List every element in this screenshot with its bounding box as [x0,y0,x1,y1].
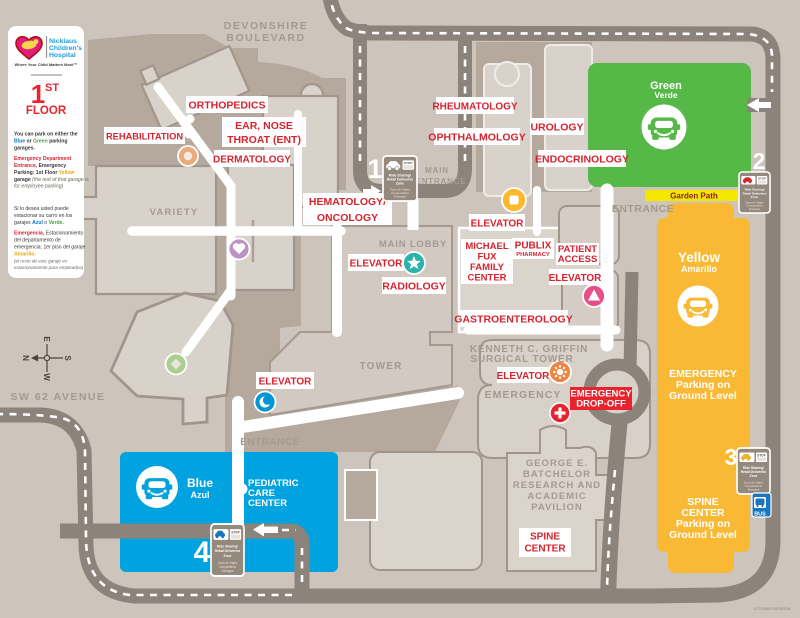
svg-text:GASTROENTEROLOGY: GASTROENTEROLOGY [454,314,572,326]
svg-text:estacionar su carro en los: estacionar su carro en los [14,213,73,219]
svg-text:FLOOR: FLOOR [26,105,67,117]
svg-text:garage (the rest of that garag: garage (the rest of that garage is [14,177,89,183]
svg-text:ENDOCRINOLOGY: ENDOCRINOLOGY [535,154,629,166]
svg-text:RESEARCH AND: RESEARCH AND [513,480,601,491]
svg-text:ORTHOPEDICS: ORTHOPEDICS [188,100,265,112]
svg-text:ENTRANCE: ENTRANCE [240,437,300,448]
svg-text:Amarillo: Amarillo [681,264,718,274]
svg-text:BOULEVARD: BOULEVARD [226,32,305,44]
svg-text:ONCOLOGY: ONCOLOGY [317,212,378,224]
svg-text:SW 62 AVENUE: SW 62 AVENUE [10,391,105,403]
svg-text:STOP: STOP [757,453,765,457]
svg-text:S: S [63,355,72,361]
svg-text:Zone: Zone [224,554,232,558]
svg-text:Emergencia, Estacionamiento: Emergencia, Estacionamiento [14,231,84,237]
svg-text:RADIOLOGY: RADIOLOGY [382,281,446,293]
svg-text:Azul: Azul [191,490,210,500]
svg-text:ELEVATOR: ELEVATOR [471,219,525,230]
svg-text:Verde: Verde [654,90,677,100]
svg-text:RHEUMATOLOGY: RHEUMATOLOGY [432,102,518,113]
svg-text:SPINE: SPINE [530,532,560,543]
svg-text:DERMATOLOGY: DERMATOLOGY [213,155,291,166]
svg-text:ELEVATOR: ELEVATOR [497,371,551,382]
svg-text:MAIN: MAIN [425,166,449,175]
svg-text:SURGICAL TOWER: SURGICAL TOWER [470,354,573,365]
svg-text:Parking: 1st Floor Yellow: Parking: 1st Floor Yellow [14,170,75,176]
svg-text:UROLOGY: UROLOGY [530,122,583,134]
svg-text:HEMATOLOGY/: HEMATOLOGY/ [309,196,386,208]
svg-text:VARIETY: VARIETY [150,207,199,218]
svg-text:FUX: FUX [478,252,498,263]
svg-text:W: W [42,373,51,381]
svg-text:garages.: garages. [14,146,36,152]
svg-text:Hospital: Hospital [49,52,76,59]
svg-text:PAVILION: PAVILION [531,502,582,513]
svg-text:You can park on either the: You can park on either the [14,132,78,138]
svg-text:ST: ST [45,82,59,94]
svg-text:emergencia: 1er piso del garaj: emergencia: 1er piso del garaje [14,245,86,251]
svg-text:Zone: Zone [750,474,758,478]
svg-text:Garden Path: Garden Path [670,192,718,201]
svg-text:MAIN LOBBY: MAIN LOBBY [379,239,447,250]
svg-text:Nicklaus: Nicklaus [49,38,77,45]
svg-text:4: 4 [194,536,211,569]
svg-text:CENTER: CENTER [467,273,506,284]
svg-text:Blue or Green parking: Blue or Green parking [14,139,68,145]
svg-text:Si lo desea usted puede: Si lo desea usted puede [14,206,69,212]
svg-text:ENTRANCE: ENTRANCE [612,203,674,215]
svg-text:17727MAR-RSPW2024: 17727MAR-RSPW2024 [754,607,791,611]
svg-text:ACCESS: ACCESS [558,254,598,265]
svg-text:Entregas: Entregas [394,195,406,199]
svg-text:CENTER: CENTER [524,544,566,555]
svg-text:Entrance, Emergency: Entrance, Emergency [14,163,66,169]
svg-text:ELEVATOR: ELEVATOR [350,259,404,270]
svg-text:Where Your Child Matters Most™: Where Your Child Matters Most™ [15,62,78,67]
svg-text:del departamento de: del departamento de [14,238,61,244]
svg-text:ELEVATOR: ELEVATOR [549,273,603,284]
svg-text:STOP: STOP [404,161,413,165]
svg-text:CENTER: CENTER [248,498,287,509]
svg-text:STOP: STOP [231,530,240,534]
svg-text:Yellow: Yellow [678,250,721,265]
svg-text:Entregas: Entregas [748,487,760,491]
svg-text:Blue: Blue [187,476,213,490]
svg-text:STOP: STOP [758,176,766,180]
svg-text:Zone: Zone [751,195,759,199]
svg-text:THROAT (ENT): THROAT (ENT) [227,134,301,146]
svg-text:Ground Level: Ground Level [669,390,737,402]
svg-text:MICHAEL: MICHAEL [465,241,508,252]
svg-text:Amarillo.: Amarillo. [14,252,36,258]
svg-text:BUS: BUS [754,512,766,518]
svg-text:N: N [21,355,30,361]
svg-text:Entregas: Entregas [222,569,234,573]
svg-text:ELEVATOR: ELEVATOR [259,377,313,388]
svg-text:BATCHELOR: BATCHELOR [523,469,591,480]
svg-text:Entregas: Entregas [749,207,761,211]
svg-text:Children's: Children's [49,45,82,52]
svg-text:EMERGENCY: EMERGENCY [485,389,562,401]
svg-text:DROP-OFF: DROP-OFF [576,399,626,410]
svg-text:FAMILY: FAMILY [470,262,505,273]
svg-text:1: 1 [367,154,382,184]
svg-text:Ground Level: Ground Level [669,529,737,541]
svg-text:estacionamiento para empleados: estacionamiento para empleados) [14,265,84,270]
svg-text:EAR, NOSE: EAR, NOSE [235,120,293,132]
svg-text:PHARMACY: PHARMACY [516,252,550,258]
svg-text:(el resto de este garaje es: (el resto de este garaje es [14,259,68,264]
svg-text:E: E [42,336,51,342]
svg-text:for employee parking): for employee parking) [14,184,64,190]
svg-text:Zone: Zone [396,181,404,185]
svg-text:2: 2 [753,148,766,174]
svg-text:TOWER: TOWER [359,361,402,372]
svg-text:REHABILITATION: REHABILITATION [106,132,183,142]
svg-text:ENTRANCE: ENTRANCE [416,177,467,186]
svg-text:Emergency Department: Emergency Department [14,156,71,162]
svg-text:OPHTHALMOLOGY: OPHTHALMOLOGY [428,132,525,144]
svg-text:ACADEMIC: ACADEMIC [527,491,586,502]
svg-text:PUBLIX: PUBLIX [515,241,552,252]
svg-text:DEVONSHIRE: DEVONSHIRE [224,20,308,32]
svg-text:3: 3 [725,444,738,470]
svg-text:garajes Azul o Verde.: garajes Azul o Verde. [14,220,64,226]
svg-text:GEORGE E.: GEORGE E. [526,458,588,469]
